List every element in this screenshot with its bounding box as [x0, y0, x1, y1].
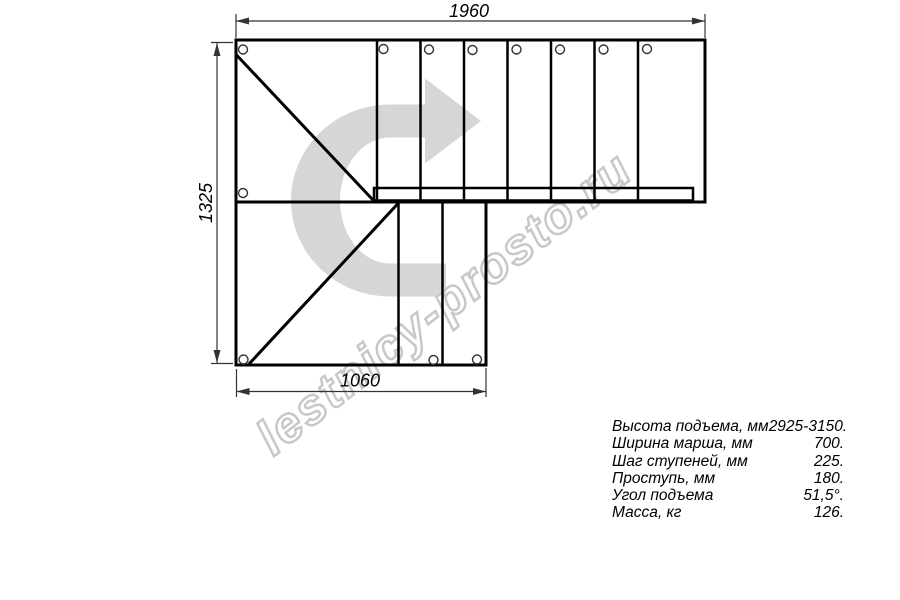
landing-diagonal-line [249, 203, 399, 364]
hole-icon [239, 45, 248, 54]
dim-arrowhead-icon [237, 388, 250, 395]
spec-row: Шаг ступеней, мм 225. [612, 453, 844, 470]
spec-label: Проступь, мм [612, 470, 715, 487]
dim-arrowhead-icon [236, 18, 249, 25]
lower-flight [236, 202, 486, 365]
hole-icon [429, 356, 438, 365]
spec-value: 700. [814, 435, 844, 452]
hole-icon [425, 45, 434, 54]
spec-label: Шаг ступеней, мм [612, 453, 748, 470]
spec-value: 126. [814, 504, 844, 521]
hole-icon [239, 189, 248, 198]
spec-value: 51,5°. [803, 487, 844, 504]
spec-row: Угол подъема 51,5°. [612, 487, 844, 504]
hole-icon [643, 45, 652, 54]
hole-icon [239, 355, 248, 364]
dim-arrowhead-icon [692, 18, 705, 25]
dim-arrowhead-icon [214, 43, 221, 56]
landing-diagonal-line [237, 55, 374, 200]
hole-icon [556, 45, 565, 54]
spec-label: Угол подъема [612, 487, 713, 504]
lower-flight-outline [236, 202, 486, 365]
spec-label: Высота подъема, мм [612, 418, 769, 435]
hole-icon [379, 45, 388, 54]
spec-row: Проступь, мм 180. [612, 470, 844, 487]
stringer-beam-outline [374, 188, 693, 201]
upper-flight-outline [236, 40, 705, 202]
spec-row: Масса, кг 126. [612, 504, 844, 521]
hole-icon [512, 45, 521, 54]
spec-value: 180. [814, 470, 844, 487]
dim-label-top: 1960 [449, 1, 489, 21]
hole-icon [468, 46, 477, 55]
mounting-holes [239, 45, 652, 365]
specs-table: Высота подъема, мм 2925-3150. Ширина мар… [612, 418, 844, 522]
hole-icon [599, 45, 608, 54]
dim-label-bottom: 1060 [340, 371, 380, 391]
dim-label-left: 1325 [196, 182, 216, 223]
spec-value: 2925-3150. [769, 418, 847, 435]
dim-arrowhead-icon [473, 388, 486, 395]
dim-arrowhead-icon [214, 350, 221, 363]
spec-value: 225. [814, 453, 844, 470]
spec-label: Масса, кг [612, 504, 681, 521]
spec-row: Высота подъема, мм 2925-3150. [612, 418, 844, 435]
spec-row: Ширина марша, мм 700. [612, 435, 844, 452]
spec-label: Ширина марша, мм [612, 435, 753, 452]
stair-plan-page: lestnicy-prosto.ru [0, 0, 900, 600]
hole-icon [473, 355, 482, 364]
upper-flight [236, 40, 705, 202]
